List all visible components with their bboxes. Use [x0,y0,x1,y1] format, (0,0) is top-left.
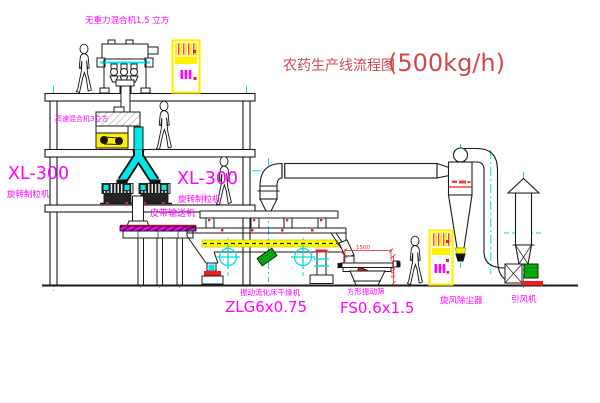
granulator-right-model: XL-300 [177,169,238,189]
dryer-right-support [310,250,333,284]
control-cabinet-1 [173,41,200,93]
motor-symbol [181,70,192,79]
top-floor-beam [45,94,255,102]
cad-flow-diagram: 无重力混合机1.5 立方 农药生产线流程图 (500kg/h) 高速混合机3立方… [0,0,600,403]
fan-label: 引风机 [511,294,537,305]
dryer-feed-spout [202,263,223,284]
granulator-right-name: 旋转制粒机 [178,194,221,205]
fluid-bed-dryer [187,211,354,284]
control-cabinet-2 [430,231,453,285]
vibration-motor-symbol [216,245,240,269]
person-second-floor [157,101,172,149]
granulator-left-model: XL-300 [8,164,69,184]
motor-symbol [435,264,446,273]
granulator-left-name: 旋转制粒机 [7,189,50,200]
diagram-title-cn: 农药生产线流程图 [283,58,395,74]
conveyor-leg [157,238,163,285]
feeder-valves [110,64,138,82]
granulator-left [100,184,135,205]
diagram-title-capacity: (500kg/h) [388,49,505,77]
right-column [243,94,250,286]
induced-draft-fan [505,264,543,286]
dryer-model-label: ZLG6x0.75 [225,298,307,316]
dim-540: 540 [391,267,397,278]
cyclone-label: 旋风除尘器 [440,295,483,306]
vibration-motor-symbol [291,245,315,269]
fan-base [521,281,543,286]
gravity-mixer-label: 无重力混合机1.5 立方 [85,15,169,26]
diagram-svg: 无重力混合机1.5 立方 农药生产线流程图 (500kg/h) 高速混合机3立方… [0,0,600,403]
high-speed-mixer-label: 高速混合机3立方 [55,114,108,123]
screen-name-label: 方形振动筛 [347,286,385,296]
mid-floor-beam [45,150,255,158]
dryer-hood-plate [200,211,338,218]
exhaust-stack [508,179,539,265]
gravity-free-mixer [97,40,158,93]
conveyor-leg [138,238,144,285]
dryer-top-nozzles [206,218,326,228]
dim-1500: 1500 [356,245,370,251]
belt-conveyor-label: 皮带输送机 [150,207,195,219]
belt-conveyor [120,225,196,285]
person-top-floor [77,44,92,92]
green-vibration-motor [257,248,277,266]
exhaust-duct [258,164,450,212]
conveyor-leg [177,238,183,285]
fan-motor [524,264,538,278]
person-ground [408,236,423,284]
dryer-name-label: 振动流化床干燥机 [240,287,300,297]
screen-model-label: FS0.6x1.5 [340,299,414,317]
